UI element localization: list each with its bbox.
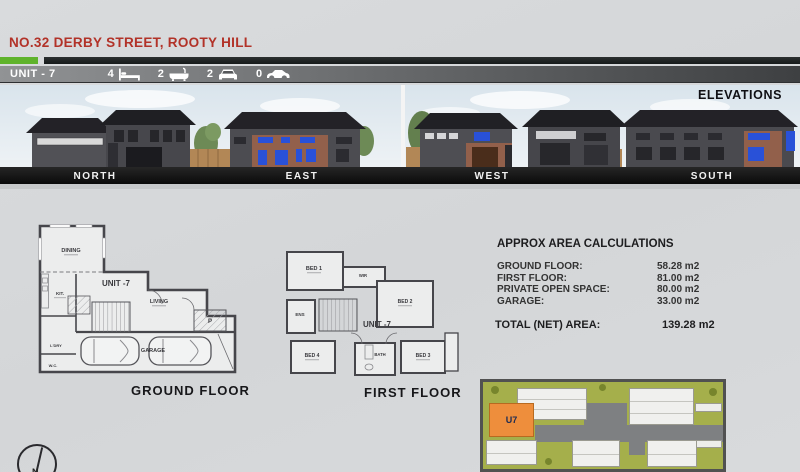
table-row: PRIVATE OPEN SPACE: 80.00 m2	[497, 284, 727, 296]
tree	[709, 388, 717, 396]
row-label: FIRST FLOOR:	[497, 273, 567, 284]
stairs	[319, 299, 357, 331]
bedrooms-count: 4	[108, 68, 114, 80]
porch-label: P	[208, 319, 212, 325]
elevations-strip: NORTH EAST WEST SOUTH	[0, 85, 800, 189]
ens-label: ENS	[295, 312, 304, 317]
driveway-court	[584, 403, 627, 442]
ground-floor-plan: DINING UNIT -7 KIT. LIVING GARAGE L'DRY …	[32, 222, 237, 377]
bath-room	[355, 343, 395, 375]
ground-band	[0, 167, 800, 184]
highlighted-unit-7: U7	[489, 403, 534, 437]
south-elevation-label: SOUTH	[691, 171, 734, 182]
plan-sheet: NO.32 DERBY STREET, ROOTY HILL UNIT - 7 …	[0, 0, 800, 472]
ff-unit-label: UNIT -7	[363, 320, 392, 329]
area-calculations-heading: APPROX AREA CALCULATIONS	[497, 238, 674, 250]
wir-label: WIR	[359, 273, 367, 278]
bathrooms-stat: 2	[158, 67, 190, 81]
compass-north-label: N	[32, 467, 39, 472]
table-row: GROUND FLOOR: 58.28 m2	[497, 261, 727, 273]
gf-unit-label: UNIT -7	[102, 279, 131, 288]
car-side-icon	[266, 68, 290, 80]
unit-block	[629, 388, 694, 425]
u7-label: U7	[506, 415, 518, 425]
unit-block	[647, 440, 697, 467]
south-elevation-render	[620, 110, 798, 167]
page-title: NO.32 DERBY STREET, ROOTY HILL	[9, 35, 252, 50]
row-value: 33.00 m2	[657, 296, 699, 307]
table-row: FIRST FLOOR: 81.00 m2	[497, 273, 727, 285]
unit-label: UNIT - 7	[10, 68, 56, 80]
kitchen-label: KIT.	[56, 291, 64, 296]
laundry-label: L'DRY	[50, 343, 62, 348]
carport-spaces-count: 0	[256, 68, 262, 80]
row-label: GARAGE:	[497, 296, 544, 307]
unit-block	[486, 440, 537, 465]
area-calculations-table: GROUND FLOOR: 58.28 m2 FIRST FLOOR: 81.0…	[497, 261, 727, 307]
first-floor-plan: BED 1 WIR BED 2 ENS UNIT -7 BED 4 BATH B…	[285, 245, 460, 380]
stairs	[92, 302, 130, 332]
carport-spaces-stat: 0	[256, 68, 290, 80]
living-label: LIVING	[150, 299, 168, 305]
east-elevation-render	[224, 112, 366, 167]
bed3-label: BED 3	[416, 353, 431, 359]
row-label: GROUND FLOOR:	[497, 261, 583, 272]
bathrooms-count: 2	[158, 68, 164, 80]
row-value: 58.28 m2	[657, 261, 699, 272]
row-label: PRIVATE OPEN SPACE:	[497, 284, 610, 295]
bed-icon	[118, 68, 141, 81]
green-accent-bar	[0, 57, 38, 64]
parking-space	[695, 403, 722, 412]
parking-space	[695, 440, 722, 448]
car-topview	[81, 337, 139, 365]
car-front-icon	[217, 67, 239, 81]
garage-label: GARAGE	[141, 348, 165, 354]
site-plan: U7	[480, 379, 726, 472]
total-area-row: TOTAL (NET) AREA: 139.28 m2	[495, 319, 735, 331]
east-elevation-label: EAST	[286, 171, 319, 182]
dining-label: DINING	[61, 248, 80, 254]
garage-spaces-stat: 2	[207, 67, 239, 81]
bed1-label: BED 1	[306, 266, 322, 272]
unit-summary-bar: UNIT - 7 4 2	[0, 66, 800, 83]
total-label: TOTAL (NET) AREA:	[495, 319, 600, 331]
bed2-label: BED 2	[398, 299, 413, 305]
tree	[545, 458, 552, 465]
tree	[599, 384, 606, 391]
total-value: 139.28 m2	[662, 319, 715, 331]
north-elevation-render	[26, 110, 196, 167]
garage-spaces-count: 2	[207, 68, 213, 80]
unit-block	[572, 440, 620, 467]
bed4-label: BED 4	[305, 353, 320, 359]
row-value: 81.00 m2	[657, 273, 699, 284]
west-elevation-label: WEST	[475, 171, 510, 182]
balcony	[445, 333, 458, 371]
first-floor-caption: FIRST FLOOR	[364, 385, 462, 400]
north-elevation-label: NORTH	[73, 171, 116, 182]
table-row: GARAGE: 33.00 m2	[497, 296, 727, 308]
unit-stats: 4 2 2	[108, 67, 291, 81]
bath-icon	[168, 67, 190, 81]
north-compass: N	[17, 444, 57, 472]
ground-floor-caption: GROUND FLOOR	[131, 383, 250, 398]
row-value: 80.00 m2	[657, 284, 699, 295]
tree	[491, 386, 499, 394]
wc-label: W.C.	[49, 363, 58, 368]
bedrooms-stat: 4	[108, 68, 141, 81]
bath-label: BATH	[374, 352, 385, 357]
black-accent-bar	[44, 57, 800, 64]
elevations-heading: ELEVATIONS	[698, 88, 782, 102]
